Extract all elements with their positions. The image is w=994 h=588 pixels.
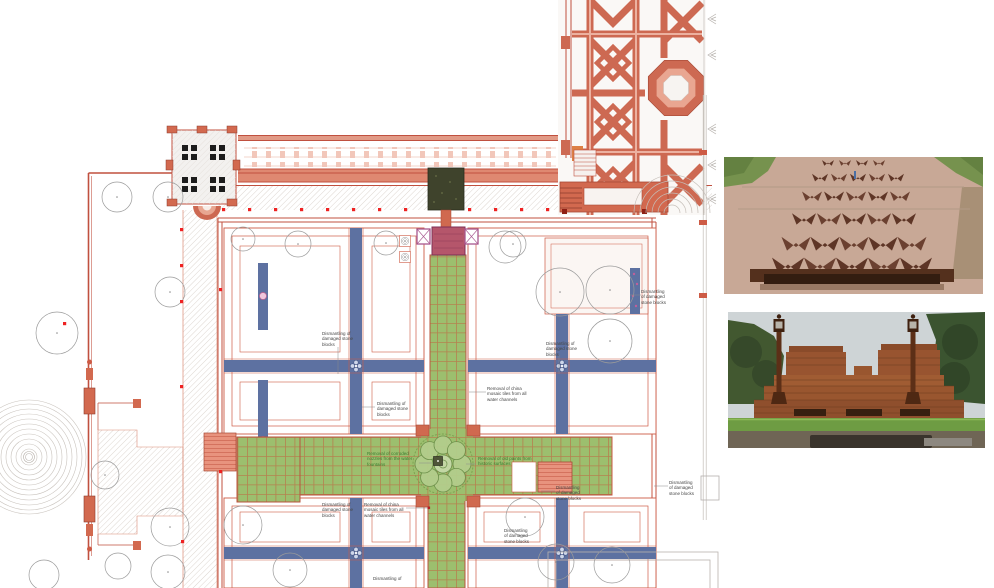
walkway-hatch-west xyxy=(98,430,183,534)
annotation-label: Dismantling of damaged stone blocks xyxy=(322,331,355,347)
pavilion xyxy=(166,126,240,220)
blue-marker xyxy=(854,171,856,179)
octagonal-pool xyxy=(648,60,703,115)
annotation-label: Removal of china mosaic tiles from all w… xyxy=(487,386,531,402)
annotation-label: Dismantling of damaged stone blocks xyxy=(641,289,668,305)
quadrant-ne xyxy=(468,228,656,434)
quadrant-se xyxy=(468,498,656,588)
annotation-label: Dismantling of damaged stone blocks xyxy=(546,341,579,357)
annotation-label: Dismantling of damaged stone blocks xyxy=(556,485,583,501)
corridor-arcade xyxy=(238,136,566,183)
lawn-and-foreground xyxy=(728,418,985,448)
annotation-label: Dismantling of damaged stone blocks xyxy=(377,401,410,417)
walkway-hatch-vertical xyxy=(183,210,217,588)
annotation-label: Dismantling of damaged stone blocks xyxy=(322,502,355,518)
fountain-core xyxy=(434,457,443,466)
site-plan-drawing xyxy=(0,0,994,588)
annotation-label: Removal of corroded nozzles from the wat… xyxy=(367,451,421,467)
slide-canvas: Dismantling of damaged stone blocks Dism… xyxy=(0,0,994,588)
annotation-label: Dismantling of xyxy=(373,576,406,581)
chute-lip xyxy=(750,269,954,290)
terrace-steps xyxy=(560,182,668,214)
wall-openings xyxy=(794,409,930,416)
gray-fixture xyxy=(701,476,719,500)
water-tank xyxy=(428,168,464,228)
east-walk-lines xyxy=(612,437,652,495)
west-steps-block xyxy=(204,433,236,471)
carved-sandstone-water-chute-photo xyxy=(724,157,983,294)
annotation-label: Removal of old paints from historic surf… xyxy=(478,456,532,467)
annotation-label: Removal of china mosaic tiles from all w… xyxy=(364,502,408,518)
leader-arrow-dot xyxy=(428,507,431,510)
annotation-label: Dismantling of damaged stone blocks xyxy=(504,528,531,544)
annotation-label: Dismantling of damaged stone blocks xyxy=(669,480,696,496)
red-sandstone-terrace-with-lamps-photo xyxy=(728,312,985,448)
ripple-circles xyxy=(0,400,86,514)
